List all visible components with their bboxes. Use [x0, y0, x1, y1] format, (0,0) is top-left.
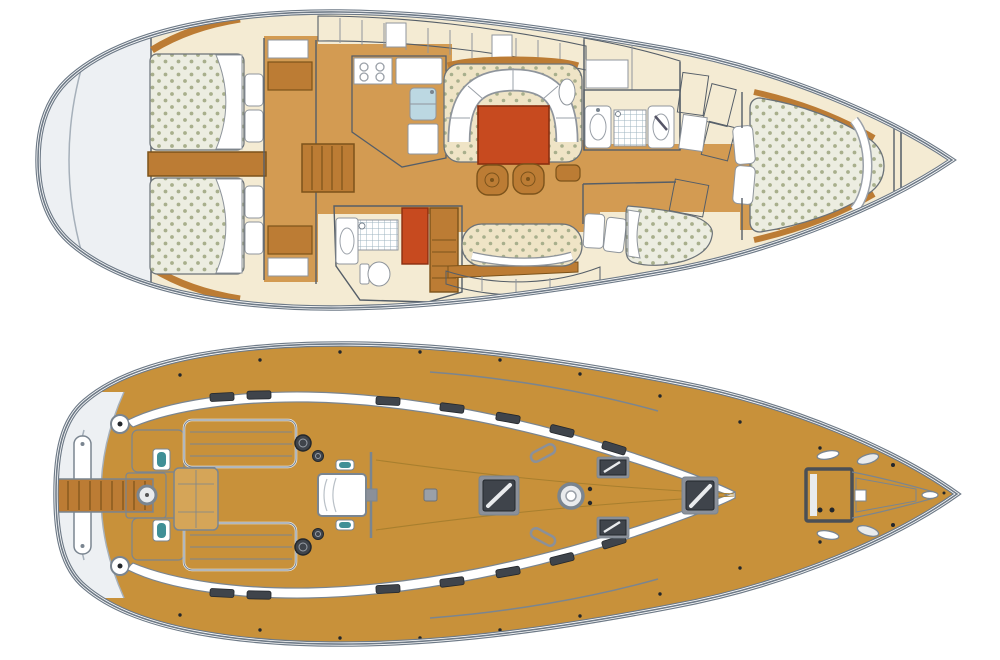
- deck-view: [40, 344, 957, 644]
- pillow: [732, 125, 755, 165]
- yacht-plan-svg: [0, 0, 1000, 660]
- pillow: [583, 213, 605, 248]
- stool: [477, 165, 508, 195]
- engine-compartment: [148, 152, 266, 176]
- toilet-icon: [368, 262, 390, 286]
- washbasin-icon: [590, 114, 606, 140]
- companionway-hatch: [318, 474, 366, 516]
- stove-icon: [354, 58, 392, 84]
- arm-table: [559, 79, 575, 105]
- pillow: [245, 186, 263, 218]
- wet-locker: [402, 208, 428, 264]
- salon-table: [478, 106, 549, 164]
- helm-pedestal: [138, 486, 156, 504]
- pillow: [245, 222, 263, 254]
- deck-hatch-fwd: [682, 477, 718, 514]
- stool: [513, 164, 544, 194]
- yacht-layout-figure: [0, 0, 1000, 660]
- washbasin-icon: [340, 228, 354, 254]
- deck-vent: [424, 489, 437, 501]
- pillow: [603, 217, 627, 253]
- worktop: [408, 124, 438, 154]
- companionway-steps: [302, 144, 354, 192]
- pillow: [245, 110, 263, 142]
- cockpit-table: [174, 468, 218, 530]
- dresser: [430, 208, 458, 292]
- side-table: [556, 165, 580, 181]
- deck-hatch-aft: [479, 476, 519, 515]
- interior-view: [30, 12, 952, 308]
- pillow: [732, 165, 755, 205]
- fridge: [396, 58, 442, 84]
- pillow: [245, 74, 263, 106]
